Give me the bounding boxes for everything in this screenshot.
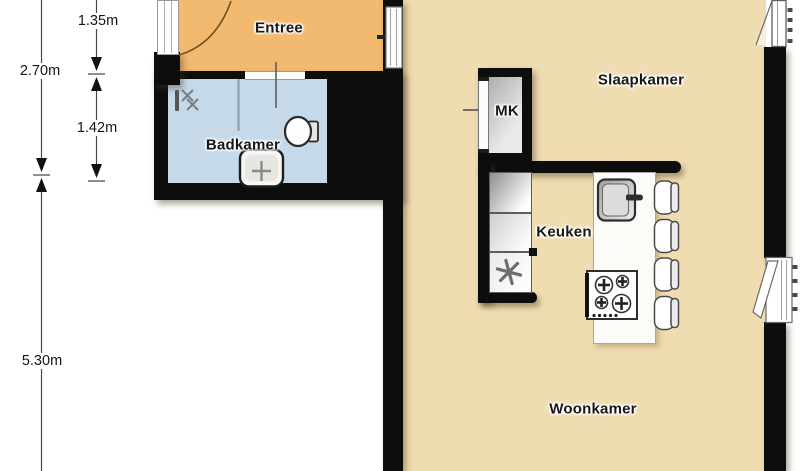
room-label-woonkamer: Woonkamer (549, 401, 636, 418)
room-label-slaapkamer: Slaapkamer (598, 72, 684, 89)
bar-stool-icon (655, 258, 679, 291)
bar-stool-icon (655, 181, 679, 214)
floorplan-canvas: Entree Badkamer Slaapkamer MK Keuken Woo… (0, 0, 800, 471)
dimension-label-2-70: 2.70m (18, 63, 62, 79)
bedroom-door-icon (377, 7, 402, 68)
toilet-icon (285, 117, 318, 146)
balcony-door-right-icon (753, 258, 798, 323)
room-label-keuken: Keuken (536, 224, 591, 241)
dimension-label-1-35: 1.35m (76, 13, 120, 29)
washbasin-icon (240, 150, 283, 187)
dimension-label-1-42: 1.42m (75, 120, 119, 136)
cooktop-icon (585, 271, 637, 319)
room-label-badkamer: Badkamer (206, 137, 280, 154)
balcony-door-top-icon (756, 1, 793, 47)
dimension-label-5-30: 5.30m (20, 353, 64, 369)
asterisk-appliance-icon (497, 260, 520, 283)
room-label-entree: Entree (255, 20, 303, 37)
shower-mixer-icon (175, 90, 198, 111)
front-door-arc-icon (165, 1, 232, 55)
room-label-mk: MK (495, 103, 519, 120)
bar-stool-icon (655, 220, 679, 253)
bar-stool-icon (655, 297, 679, 330)
island-sink-icon (598, 180, 643, 221)
